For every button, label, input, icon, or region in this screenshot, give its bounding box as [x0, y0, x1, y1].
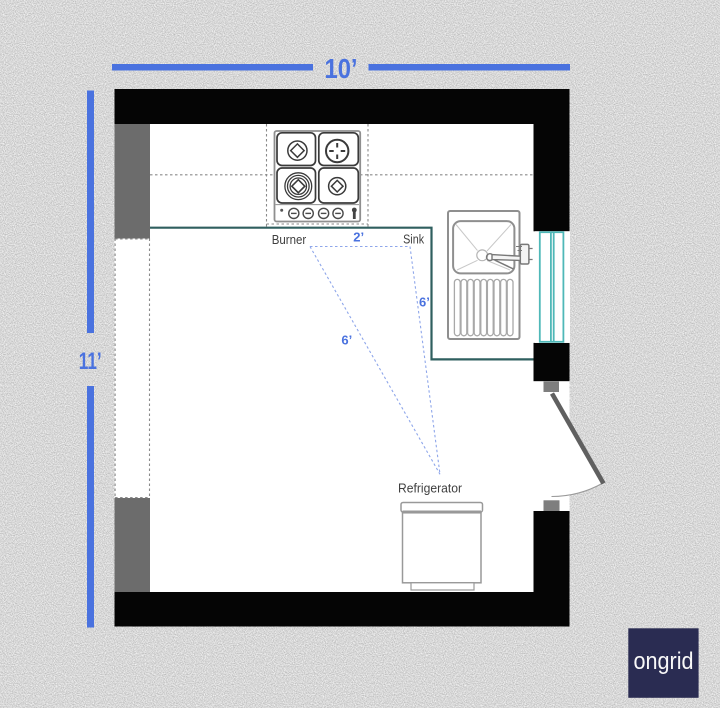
svg-text:10’: 10’ [325, 53, 358, 84]
svg-text:Refrigerator: Refrigerator [398, 481, 463, 496]
svg-text:ongrid: ongrid [634, 648, 694, 675]
svg-text:6’: 6’ [341, 333, 352, 348]
svg-text:Burner: Burner [272, 233, 307, 247]
svg-text:2’: 2’ [353, 230, 364, 245]
svg-text:11’: 11’ [79, 348, 102, 375]
svg-text:6’: 6’ [419, 295, 430, 310]
svg-text:Sink: Sink [403, 233, 425, 247]
